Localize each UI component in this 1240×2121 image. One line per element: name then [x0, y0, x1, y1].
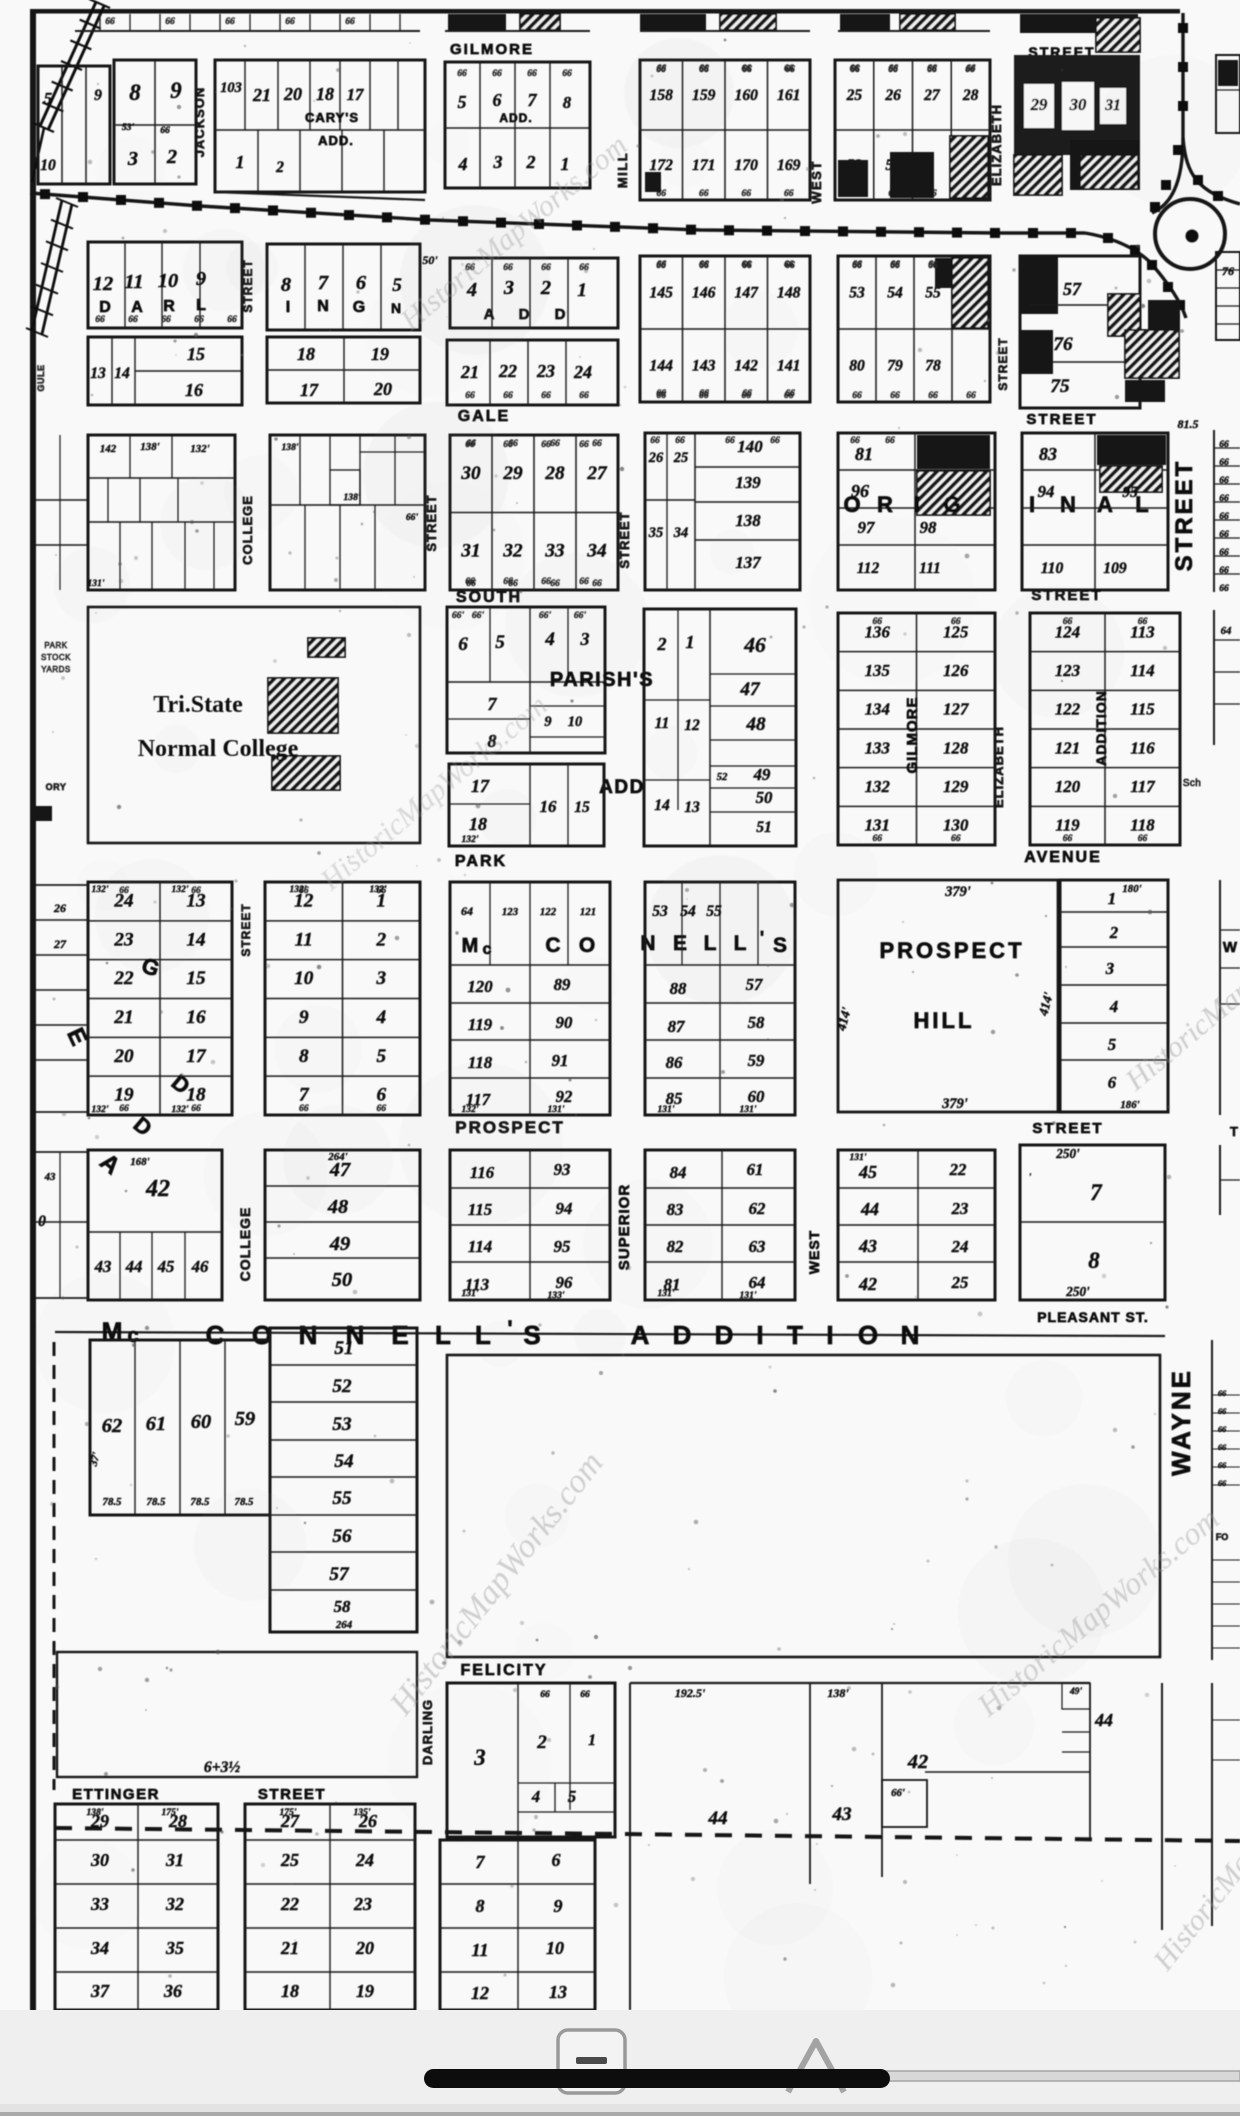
svg-text:140: 140	[737, 437, 763, 456]
svg-text:I: I	[756, 1320, 763, 1350]
svg-text:43: 43	[831, 1804, 852, 1825]
svg-text:264: 264	[335, 1619, 353, 1631]
svg-text:115: 115	[1130, 700, 1154, 719]
svg-text:18: 18	[186, 1085, 206, 1106]
svg-text:35: 35	[648, 525, 663, 541]
svg-text:52: 52	[332, 1376, 352, 1397]
svg-text:14: 14	[114, 365, 130, 382]
svg-text:66: 66	[562, 68, 572, 79]
svg-text:169: 169	[777, 157, 801, 174]
svg-text:66: 66	[1218, 1407, 1227, 1416]
svg-text:R: R	[163, 298, 175, 315]
svg-text:PARK: PARK	[44, 641, 67, 650]
svg-text:8: 8	[563, 93, 572, 112]
svg-text:23: 23	[951, 1199, 969, 1218]
svg-text:109: 109	[1103, 560, 1127, 577]
svg-text:55: 55	[332, 1488, 352, 1509]
svg-text:66: 66	[699, 388, 709, 399]
svg-text:7: 7	[476, 1852, 486, 1872]
svg-text:15: 15	[187, 344, 205, 364]
svg-text:1: 1	[588, 1732, 596, 1749]
svg-text:42: 42	[145, 1176, 170, 1202]
svg-text:W: W	[1223, 939, 1238, 956]
svg-text:66: 66	[165, 16, 175, 27]
svg-text:M: M	[462, 935, 479, 957]
svg-text:JACKSON: JACKSON	[192, 87, 207, 158]
svg-text:66: 66	[650, 435, 660, 446]
svg-text:27: 27	[53, 937, 67, 951]
svg-text:6+3½: 6+3½	[204, 1759, 240, 1776]
svg-text:CARY'S: CARY'S	[305, 110, 359, 125]
svg-text:64: 64	[1221, 625, 1232, 637]
svg-text:129: 129	[943, 777, 969, 796]
svg-text:66: 66	[1219, 457, 1229, 468]
svg-text:7: 7	[318, 272, 329, 294]
svg-text:66: 66	[457, 68, 467, 79]
svg-text:43: 43	[858, 1236, 877, 1256]
svg-text:21: 21	[252, 85, 271, 105]
svg-text:49: 49	[753, 765, 771, 784]
svg-text:131': 131'	[461, 1288, 478, 1299]
svg-text:3: 3	[1105, 959, 1114, 978]
svg-text:22: 22	[498, 361, 517, 381]
svg-text:5: 5	[44, 89, 52, 108]
svg-text:66: 66	[128, 314, 138, 325]
svg-text:66: 66	[465, 390, 475, 401]
svg-text:AVENUE: AVENUE	[1024, 849, 1102, 866]
svg-text:59: 59	[235, 1408, 255, 1430]
svg-text:66: 66	[785, 64, 795, 75]
svg-text:66: 66	[161, 314, 171, 325]
svg-text:5: 5	[568, 1787, 576, 1806]
svg-text:66: 66	[927, 64, 937, 75]
svg-text:66: 66	[1219, 439, 1229, 450]
svg-text:T: T	[1230, 1124, 1238, 1139]
svg-text:66: 66	[527, 68, 537, 79]
svg-text:132': 132'	[289, 884, 306, 895]
svg-text:134: 134	[865, 700, 890, 719]
svg-text:45: 45	[157, 1257, 175, 1276]
svg-text:C: C	[206, 1320, 225, 1350]
svg-text:48: 48	[745, 714, 766, 735]
svg-text:ELIZABETH: ELIZABETH	[991, 726, 1006, 808]
svg-text:12: 12	[684, 717, 700, 734]
svg-text:66: 66	[541, 439, 551, 450]
svg-text:STREET: STREET	[617, 511, 632, 568]
svg-text:114: 114	[1130, 661, 1154, 680]
svg-text:123: 123	[502, 906, 519, 918]
svg-text:66: 66	[852, 260, 862, 271]
svg-text:C: C	[545, 934, 560, 957]
svg-text:ELIZABETH: ELIZABETH	[989, 104, 1004, 186]
svg-text:132': 132'	[369, 884, 386, 895]
svg-text:146: 146	[692, 285, 716, 302]
svg-text:50: 50	[756, 788, 773, 807]
svg-text:E: E	[391, 1320, 408, 1350]
svg-text:STREET: STREET	[239, 903, 253, 956]
svg-text:175': 175'	[279, 1807, 296, 1818]
svg-text:ADD.: ADD.	[499, 111, 532, 125]
svg-text:26: 26	[53, 901, 66, 915]
svg-text:5: 5	[495, 632, 505, 653]
svg-text:128: 128	[943, 738, 969, 757]
svg-text:135': 135'	[353, 1807, 370, 1818]
svg-text:133: 133	[865, 738, 890, 757]
svg-text:Tri.State: Tri.State	[153, 692, 243, 718]
svg-text:62: 62	[102, 1415, 122, 1437]
svg-text:139: 139	[735, 473, 761, 492]
svg-text:138': 138'	[140, 441, 159, 453]
svg-text:75: 75	[1050, 376, 1070, 397]
svg-text:131': 131'	[739, 1104, 756, 1115]
svg-text:66: 66	[540, 1689, 550, 1700]
svg-text:66: 66	[852, 390, 862, 401]
svg-text:13: 13	[549, 1982, 567, 2002]
svg-text:N: N	[299, 1320, 318, 1350]
svg-text:31: 31	[165, 1850, 184, 1870]
svg-text:24: 24	[951, 1237, 969, 1256]
svg-text:78: 78	[925, 358, 941, 375]
svg-text:4: 4	[375, 1007, 386, 1028]
svg-text:D: D	[673, 1320, 692, 1350]
svg-text:10: 10	[40, 157, 56, 174]
svg-text:50: 50	[332, 1269, 352, 1291]
svg-text:ADD.: ADD.	[318, 133, 354, 148]
svg-text:STREET: STREET	[1032, 1120, 1103, 1137]
svg-text:46: 46	[191, 1257, 209, 1276]
svg-text:16: 16	[186, 1007, 206, 1028]
svg-text:A: A	[631, 1320, 650, 1350]
svg-text:66: 66	[725, 435, 735, 446]
svg-text:42: 42	[907, 1751, 928, 1773]
svg-text:ORY: ORY	[46, 782, 67, 792]
svg-text:WAYNE: WAYNE	[1166, 1368, 1196, 1476]
svg-text:45: 45	[858, 1162, 877, 1182]
svg-text:5: 5	[376, 1046, 386, 1067]
svg-text:3: 3	[375, 968, 386, 989]
svg-text:66: 66	[1219, 565, 1229, 576]
svg-text:11: 11	[295, 929, 313, 950]
svg-text:G: G	[353, 299, 365, 316]
svg-text:66: 66	[1219, 493, 1229, 504]
svg-text:ETTINGER: ETTINGER	[72, 1786, 160, 1803]
svg-text:25: 25	[951, 1273, 969, 1292]
svg-text:8: 8	[1088, 1248, 1100, 1273]
svg-text:49: 49	[329, 1233, 350, 1255]
svg-text:110: 110	[1041, 560, 1064, 577]
svg-text:66: 66	[850, 64, 860, 75]
svg-text:116: 116	[1130, 738, 1155, 757]
svg-text:20: 20	[355, 1938, 374, 1958]
svg-text:18: 18	[316, 84, 334, 104]
svg-text:WEST: WEST	[809, 160, 824, 204]
svg-text:GILMORE: GILMORE	[450, 41, 534, 58]
svg-text:9: 9	[170, 78, 181, 103]
svg-text:57: 57	[329, 1564, 350, 1585]
svg-text:42: 42	[858, 1274, 877, 1294]
svg-text:5: 5	[1108, 1035, 1116, 1054]
svg-text:66: 66	[742, 388, 752, 399]
svg-text:121: 121	[580, 906, 596, 918]
svg-text:13: 13	[684, 799, 700, 816]
svg-text:': '	[1029, 1172, 1032, 1183]
svg-text:379': 379'	[944, 884, 971, 900]
svg-text:86: 86	[666, 1053, 683, 1072]
svg-text:I: I	[914, 492, 920, 517]
svg-text:46: 46	[743, 633, 766, 657]
svg-text:STREET: STREET	[258, 1786, 326, 1803]
svg-text:56: 56	[332, 1526, 352, 1547]
svg-text:G: G	[943, 492, 960, 517]
svg-text:22: 22	[280, 1894, 299, 1914]
svg-text:66: 66	[965, 64, 975, 75]
svg-text:66: 66	[742, 64, 752, 75]
svg-text:66: 66	[966, 390, 976, 401]
svg-text:250': 250'	[1055, 1146, 1080, 1161]
svg-text:138': 138'	[827, 1686, 849, 1700]
svg-text:D: D	[555, 306, 566, 323]
svg-text:HILL: HILL	[914, 1008, 975, 1033]
svg-text:2: 2	[275, 159, 284, 176]
svg-text:66: 66	[579, 439, 589, 450]
svg-text:10: 10	[158, 270, 178, 292]
svg-text:119: 119	[468, 1015, 493, 1034]
svg-text:161: 161	[777, 87, 800, 104]
svg-text:250': 250'	[1065, 1284, 1090, 1299]
svg-text:L: L	[435, 1320, 451, 1350]
svg-text:66: 66	[656, 388, 666, 399]
svg-text:132': 132'	[91, 1104, 108, 1115]
svg-text:S: S	[523, 1320, 540, 1350]
svg-text:27: 27	[923, 87, 941, 104]
svg-text:66: 66	[1219, 511, 1229, 522]
svg-text:78.5: 78.5	[103, 1496, 122, 1508]
svg-text:53': 53'	[122, 122, 135, 133]
svg-text:25: 25	[673, 450, 688, 466]
svg-text:53: 53	[849, 285, 865, 302]
svg-text:N: N	[317, 298, 329, 315]
svg-text:15: 15	[186, 968, 206, 989]
svg-text:138': 138'	[343, 492, 360, 503]
svg-text:66: 66	[742, 260, 752, 271]
svg-text:80: 80	[849, 358, 865, 375]
svg-text:27: 27	[586, 463, 608, 484]
svg-text:22: 22	[113, 968, 134, 989]
svg-text:66: 66	[95, 314, 105, 325]
svg-text:STREET: STREET	[1026, 411, 1097, 428]
svg-text:21: 21	[280, 1938, 299, 1958]
svg-text:66: 66	[1218, 1443, 1227, 1452]
svg-text:81.5: 81.5	[1178, 417, 1199, 431]
svg-text:62: 62	[749, 1199, 766, 1218]
svg-text:10: 10	[546, 1938, 564, 1958]
svg-text:1: 1	[236, 152, 245, 172]
svg-text:11: 11	[471, 1940, 488, 1960]
svg-text:66: 66	[580, 1689, 590, 1700]
svg-text:25: 25	[846, 87, 863, 104]
svg-text:44: 44	[125, 1257, 143, 1276]
svg-text:66: 66	[785, 260, 795, 271]
svg-text:81: 81	[855, 444, 873, 464]
svg-text:66: 66	[785, 388, 795, 399]
svg-text:ADD: ADD	[599, 777, 645, 798]
svg-text:O: O	[858, 1320, 878, 1350]
svg-text:66: 66	[675, 435, 685, 446]
svg-text:N: N	[1060, 492, 1076, 517]
svg-text:8: 8	[129, 80, 141, 105]
svg-text:120: 120	[467, 977, 493, 996]
svg-text:54: 54	[887, 285, 903, 302]
svg-text:132': 132'	[190, 443, 209, 455]
svg-text:52: 52	[717, 771, 728, 783]
svg-text:114: 114	[468, 1237, 492, 1256]
svg-text:5: 5	[458, 92, 467, 112]
svg-text:83: 83	[1039, 444, 1057, 464]
svg-text:94: 94	[1038, 482, 1055, 501]
svg-text:121: 121	[1055, 738, 1080, 757]
svg-text:132': 132'	[171, 1104, 188, 1115]
svg-text:120: 120	[1055, 777, 1081, 796]
svg-text:12: 12	[471, 1983, 489, 2003]
svg-text:66: 66	[890, 390, 900, 401]
svg-text:66: 66	[928, 260, 938, 271]
svg-text:2: 2	[657, 634, 667, 654]
svg-text:6: 6	[458, 634, 468, 655]
svg-text:2: 2	[1109, 923, 1118, 942]
svg-text:138': 138'	[281, 442, 298, 453]
svg-text:51: 51	[756, 819, 772, 836]
svg-text:c: c	[483, 941, 492, 958]
svg-text:180': 180'	[1122, 883, 1141, 895]
svg-text:64: 64	[461, 904, 473, 918]
svg-text:30: 30	[1069, 95, 1087, 114]
svg-text:26: 26	[884, 87, 901, 104]
svg-text:66: 66	[194, 314, 204, 325]
svg-text:59: 59	[748, 1051, 765, 1070]
svg-text:13: 13	[90, 365, 106, 382]
svg-text:44: 44	[1094, 1710, 1113, 1730]
svg-text:66: 66	[1219, 475, 1229, 486]
svg-text:STREET: STREET	[1171, 459, 1198, 572]
svg-text:66: 66	[503, 390, 513, 401]
svg-text:19: 19	[356, 1981, 374, 2001]
svg-text:58: 58	[748, 1013, 765, 1032]
svg-text:78.5: 78.5	[147, 1496, 166, 1508]
svg-text:Sch: Sch	[1183, 778, 1201, 789]
svg-text:379': 379'	[941, 1096, 968, 1112]
svg-text:66: 66	[503, 439, 513, 450]
svg-text:18: 18	[297, 344, 315, 364]
svg-text:66': 66'	[891, 1787, 905, 1799]
svg-text:3: 3	[493, 152, 503, 172]
svg-text:6: 6	[552, 1850, 561, 1870]
svg-text:N: N	[901, 1320, 920, 1350]
svg-text:STREET: STREET	[996, 337, 1010, 390]
svg-text:53: 53	[332, 1414, 352, 1435]
svg-text:WEST: WEST	[806, 1230, 822, 1274]
svg-text:117: 117	[1130, 777, 1155, 796]
svg-text:GILMORE: GILMORE	[904, 697, 921, 774]
svg-text:66: 66	[227, 314, 237, 325]
svg-text:2: 2	[526, 152, 536, 172]
svg-text:131': 131'	[657, 1104, 674, 1115]
svg-text:66: 66	[1218, 1425, 1227, 1434]
svg-text:143: 143	[692, 358, 716, 375]
svg-text:16: 16	[540, 797, 557, 816]
svg-text:PARK: PARK	[455, 853, 507, 870]
svg-text:119: 119	[1055, 816, 1080, 835]
svg-text:142: 142	[100, 443, 117, 455]
svg-text:23: 23	[536, 361, 555, 381]
svg-text:22: 22	[949, 1160, 967, 1179]
svg-text:O: O	[843, 492, 860, 517]
svg-text:138': 138'	[86, 1807, 103, 1818]
svg-text:76: 76	[1222, 264, 1234, 278]
svg-text:29: 29	[1030, 95, 1048, 114]
svg-text:17: 17	[347, 85, 364, 104]
svg-text:6: 6	[376, 1085, 386, 1106]
svg-text:66: 66	[656, 260, 666, 271]
svg-text:16: 16	[185, 380, 203, 400]
svg-text:7: 7	[528, 90, 538, 110]
svg-text:66: 66	[345, 16, 355, 27]
svg-text:2: 2	[166, 146, 177, 168]
svg-text:23: 23	[353, 1894, 372, 1914]
svg-text:I: I	[1029, 492, 1035, 517]
svg-text:66: 66	[1219, 583, 1229, 594]
svg-text:170: 170	[735, 157, 759, 174]
svg-text:25: 25	[280, 1850, 299, 1870]
svg-text:36: 36	[163, 1981, 182, 2001]
svg-text:44: 44	[860, 1199, 879, 1219]
svg-text:95: 95	[1122, 484, 1138, 501]
svg-text:66: 66	[770, 435, 780, 446]
svg-text:6: 6	[1108, 1073, 1117, 1092]
svg-text:D: D	[715, 1320, 734, 1350]
svg-text:10: 10	[568, 714, 582, 730]
svg-text:79: 79	[887, 358, 903, 375]
svg-text:20: 20	[113, 1046, 134, 1067]
svg-text:9: 9	[94, 87, 102, 104]
svg-text:24: 24	[355, 1850, 374, 1870]
svg-text:131': 131'	[849, 1152, 866, 1163]
svg-text:8: 8	[281, 274, 291, 296]
svg-text:17: 17	[300, 380, 319, 400]
svg-text:12: 12	[93, 273, 113, 295]
svg-text:133': 133'	[547, 1290, 564, 1301]
svg-text:66: 66	[699, 188, 709, 199]
svg-text:4: 4	[1109, 997, 1118, 1016]
svg-text:15: 15	[574, 799, 590, 816]
svg-text:44: 44	[707, 1808, 728, 1829]
svg-text:7: 7	[1090, 1180, 1103, 1205]
svg-text:I: I	[286, 299, 290, 316]
svg-text:I: I	[826, 1320, 833, 1350]
svg-text:78.5: 78.5	[191, 1496, 210, 1508]
svg-text:94: 94	[556, 1199, 573, 1218]
svg-text:T: T	[787, 1320, 803, 1350]
svg-text:186': 186'	[1120, 1099, 1139, 1111]
svg-text:131: 131	[865, 816, 890, 835]
svg-text:1: 1	[1108, 889, 1116, 908]
svg-text:60: 60	[191, 1411, 211, 1433]
svg-text:9: 9	[554, 1896, 563, 1916]
svg-text:66: 66	[928, 390, 938, 401]
svg-text:66: 66	[1218, 1479, 1227, 1488]
svg-text:20: 20	[283, 84, 302, 104]
svg-text:66: 66	[1218, 1461, 1227, 1470]
svg-text:17: 17	[186, 1046, 207, 1067]
